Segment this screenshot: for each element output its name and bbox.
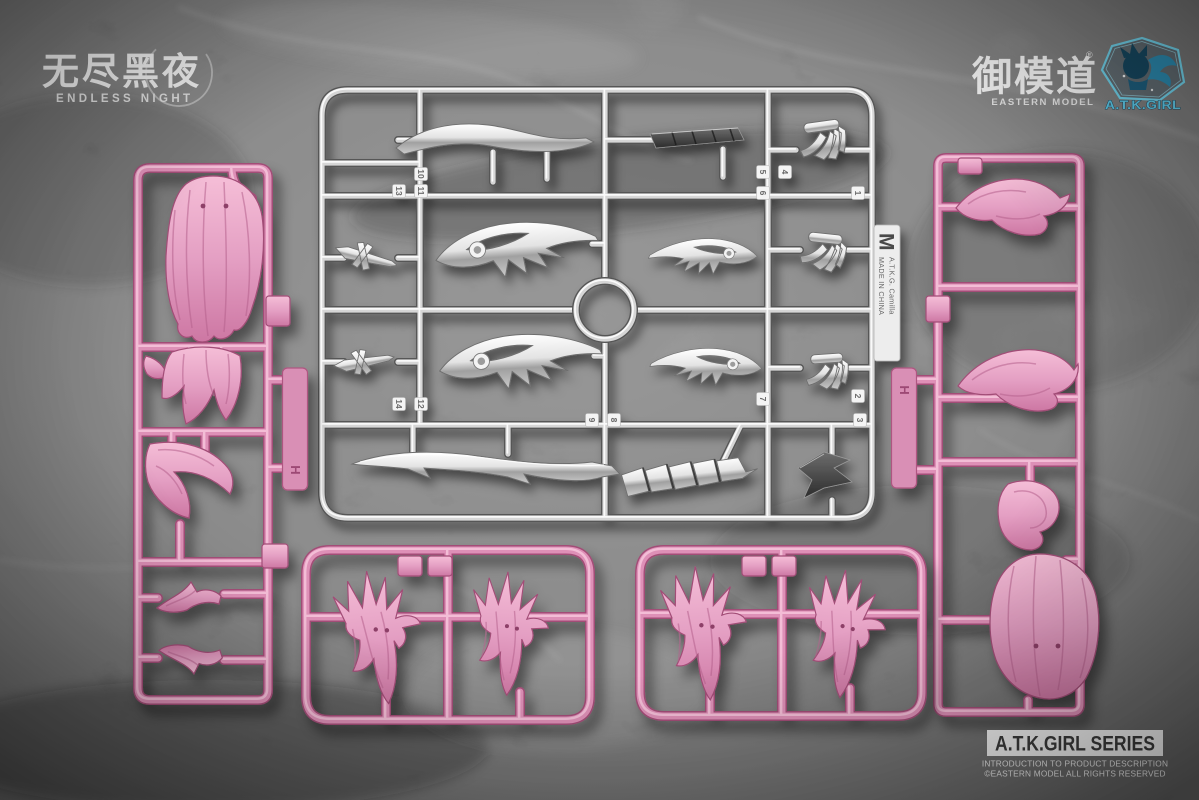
svg-text:4: 4 [780, 170, 790, 175]
part-number-tag: 13 [393, 185, 406, 198]
part-number-tag: 12 [415, 398, 428, 411]
part-back-hair-wig-right [990, 554, 1099, 699]
part-number-tag: 5 [757, 166, 770, 179]
part-number-tag: 8 [608, 414, 621, 427]
svg-text:1: 1 [853, 191, 863, 196]
maker-title-cjk: 御模道 [971, 54, 1098, 100]
part-number-tag: 6 [757, 187, 770, 200]
logo-title-cjk: 无尽黑夜 [42, 50, 202, 93]
svg-text:8: 8 [609, 418, 619, 423]
product-photo: 10 13 11 5 4 6 1 14 12 7 2 3 9 8 M A.T.K… [0, 0, 1199, 800]
sprue-tab [742, 556, 766, 576]
part-number-tag: 9 [586, 414, 599, 427]
svg-text:9: 9 [587, 418, 597, 423]
series-title: A.T.K.GIRL SERIES [995, 733, 1155, 756]
badge-wordmark: A.T.K.GIRL [1105, 100, 1181, 112]
svg-text:5: 5 [758, 170, 768, 175]
svg-text:7: 7 [758, 397, 768, 402]
svg-text:13: 13 [394, 186, 404, 196]
svg-text:14: 14 [394, 399, 404, 409]
logo-title-en: ENDLESS NIGHT [56, 93, 194, 105]
sprue-tab [262, 544, 288, 568]
svg-text:MADE IN CHINA: MADE IN CHINA [877, 257, 886, 315]
part-number-tag: 7 [757, 393, 770, 406]
runner-label-m: M A.T.K.G. Camilla MADE IN CHINA [874, 225, 900, 361]
svg-text:3: 3 [855, 418, 865, 423]
footer-series: A.T.K.GIRL SERIES INTRODUCTION TO PRODUC… [982, 730, 1168, 779]
registered-mark: ® [1086, 50, 1093, 60]
part-number-tag: 14 [393, 398, 406, 411]
svg-text:12: 12 [416, 399, 426, 409]
part-number-tag: 2 [852, 390, 865, 403]
part-back-hair-wig [166, 176, 264, 342]
svg-text:6: 6 [758, 191, 768, 196]
svg-text:11: 11 [416, 187, 426, 196]
svg-text:A.T.K.G. Camilla: A.T.K.G. Camilla [888, 257, 897, 315]
sprue-tab [772, 556, 796, 576]
sprue-tab [428, 556, 452, 576]
sprue-tab [958, 158, 982, 174]
svg-text:M: M [875, 233, 898, 251]
svg-text:2: 2 [853, 394, 863, 399]
maker-title-en: EASTERN MODEL [991, 97, 1094, 108]
svg-text:H: H [288, 465, 303, 474]
badge-atkgirl: A.T.K.GIRL [1102, 38, 1184, 112]
sprue-tab [266, 296, 290, 326]
part-number-tag: 4 [779, 166, 792, 179]
photo-canvas: 10 13 11 5 4 6 1 14 12 7 2 3 9 8 M A.T.K… [0, 0, 1199, 800]
part-number-tag: 3 [854, 414, 867, 427]
svg-text:10: 10 [416, 169, 426, 179]
footer-line-1: INTRODUCTION TO PRODUCT DESCRIPTION [982, 759, 1168, 769]
svg-text:H: H [897, 385, 912, 394]
sprue-tab [398, 556, 422, 576]
sprue-tab [926, 296, 950, 322]
part-number-tag: 11 [415, 185, 428, 198]
part-number-tag: 10 [415, 168, 428, 181]
runner-label-h-left: H [283, 368, 308, 490]
runner-label-h-right: H [892, 368, 917, 488]
logo-eastern-model: 御模道 ® EASTERN MODEL [971, 50, 1098, 108]
footer-line-2: ©EASTERN MODEL ALL RIGHTS RESERVED [984, 769, 1165, 779]
part-number-tag: 1 [852, 187, 865, 200]
